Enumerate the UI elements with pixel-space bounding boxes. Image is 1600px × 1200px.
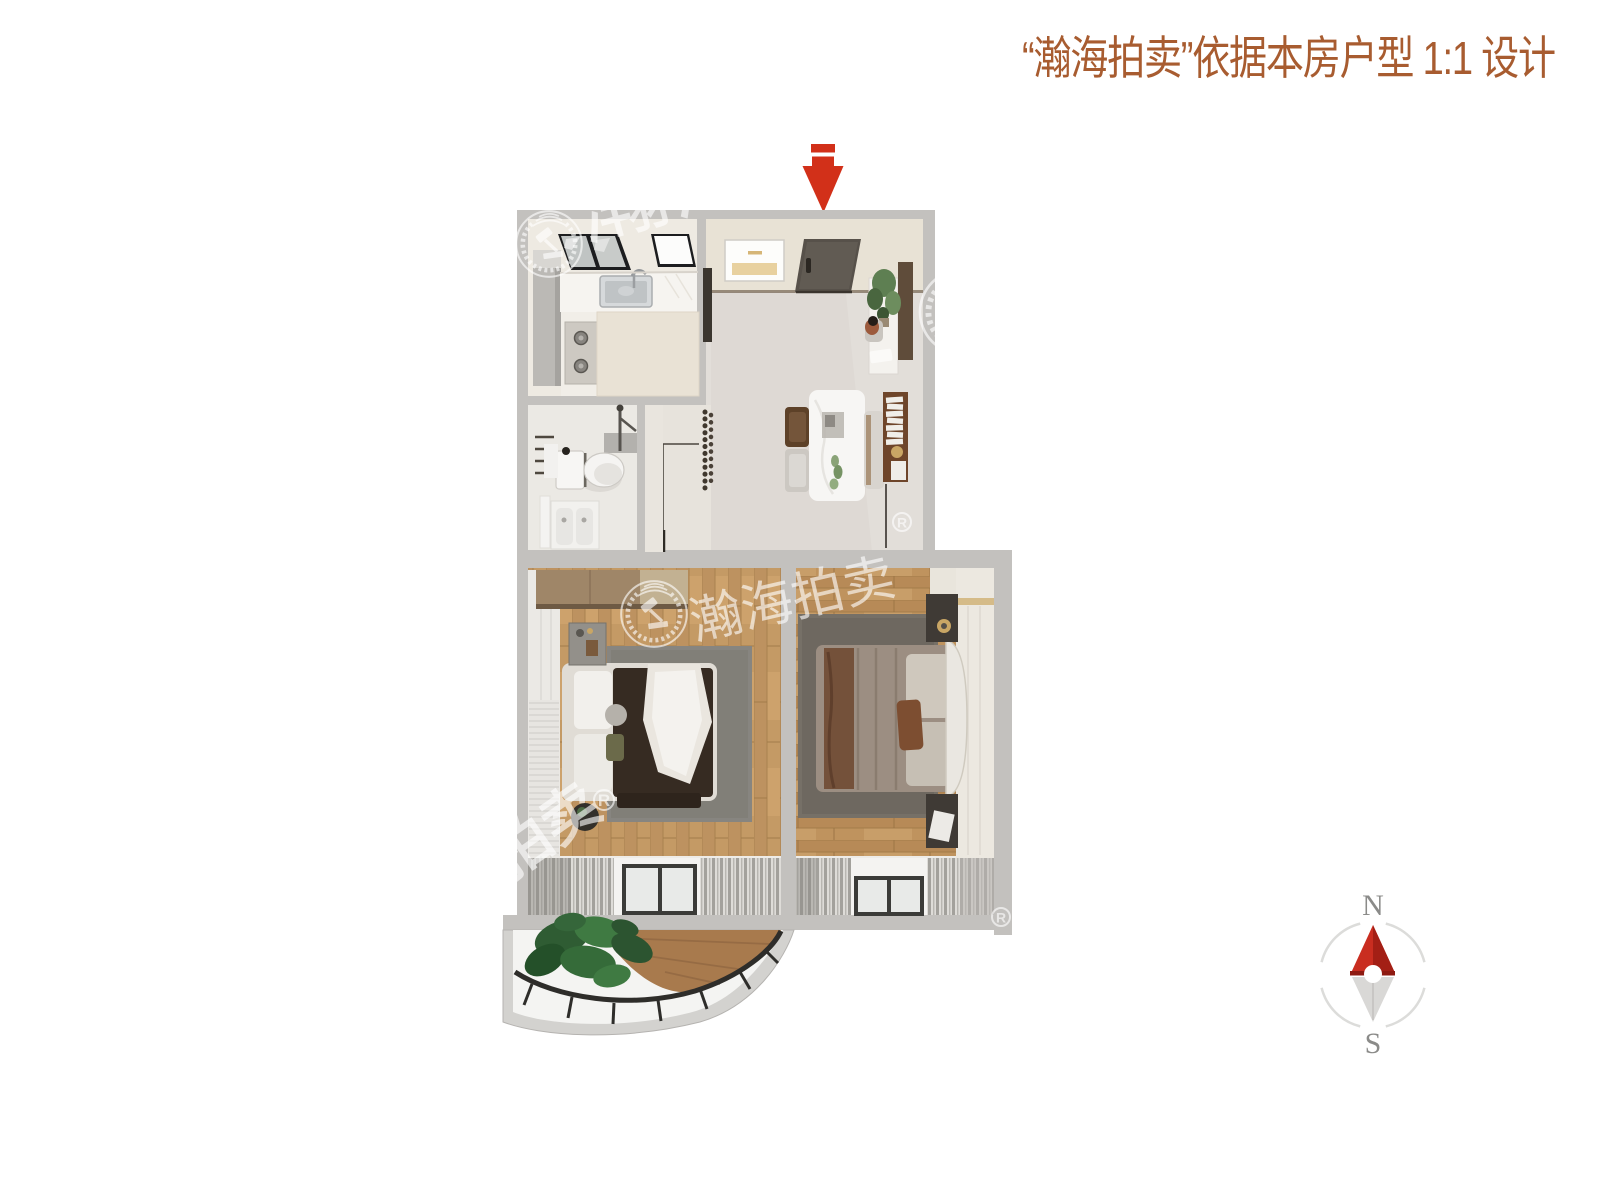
svg-text:R: R (897, 515, 907, 531)
svg-text:R: R (598, 791, 610, 810)
svg-text:“瀚海拍卖”依据本房户型 1:1 设计: “瀚海拍卖”依据本房户型 1:1 设计 (1022, 33, 1555, 84)
svg-text:N: N (1362, 889, 1384, 922)
svg-text:S: S (1365, 1027, 1382, 1060)
svg-text:R: R (996, 910, 1006, 926)
